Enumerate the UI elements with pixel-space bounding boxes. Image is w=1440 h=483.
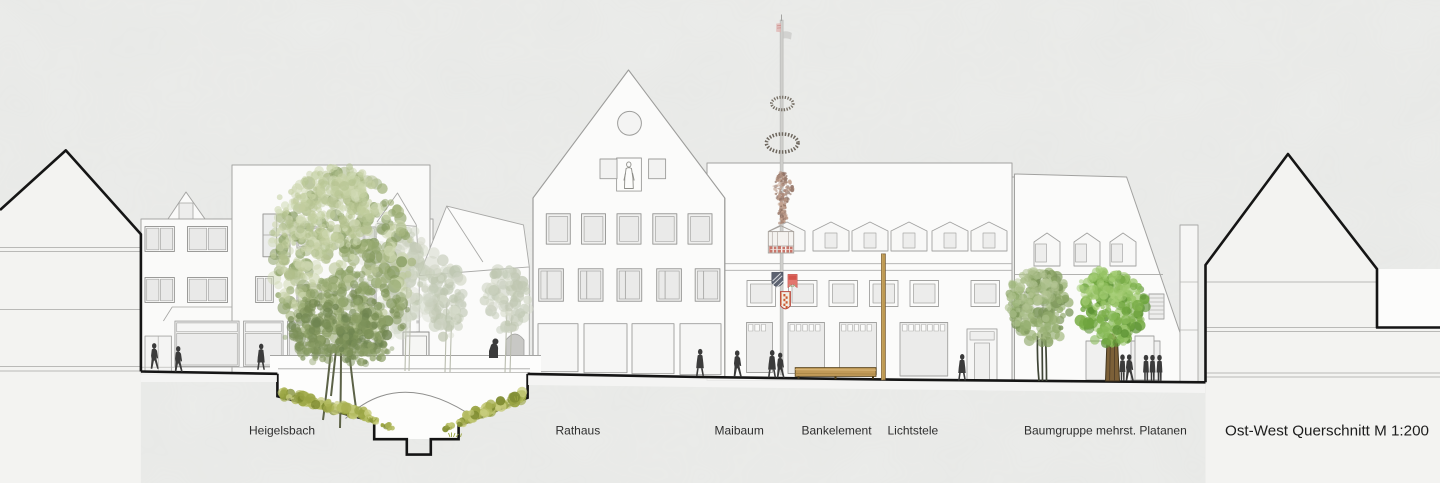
svg-text:Rathaus: Rathaus: [556, 424, 601, 438]
svg-text:Maibaum: Maibaum: [715, 424, 764, 438]
svg-text:Heigelsbach: Heigelsbach: [249, 424, 315, 438]
svg-text:Ost-West Querschnitt M 1:200: Ost-West Querschnitt M 1:200: [1225, 423, 1429, 440]
svg-text:Bankelement: Bankelement: [802, 424, 873, 438]
svg-text:Lichtstele: Lichtstele: [888, 424, 939, 438]
svg-text:Baumgruppe mehrst. Platanen: Baumgruppe mehrst. Platanen: [1024, 424, 1187, 438]
